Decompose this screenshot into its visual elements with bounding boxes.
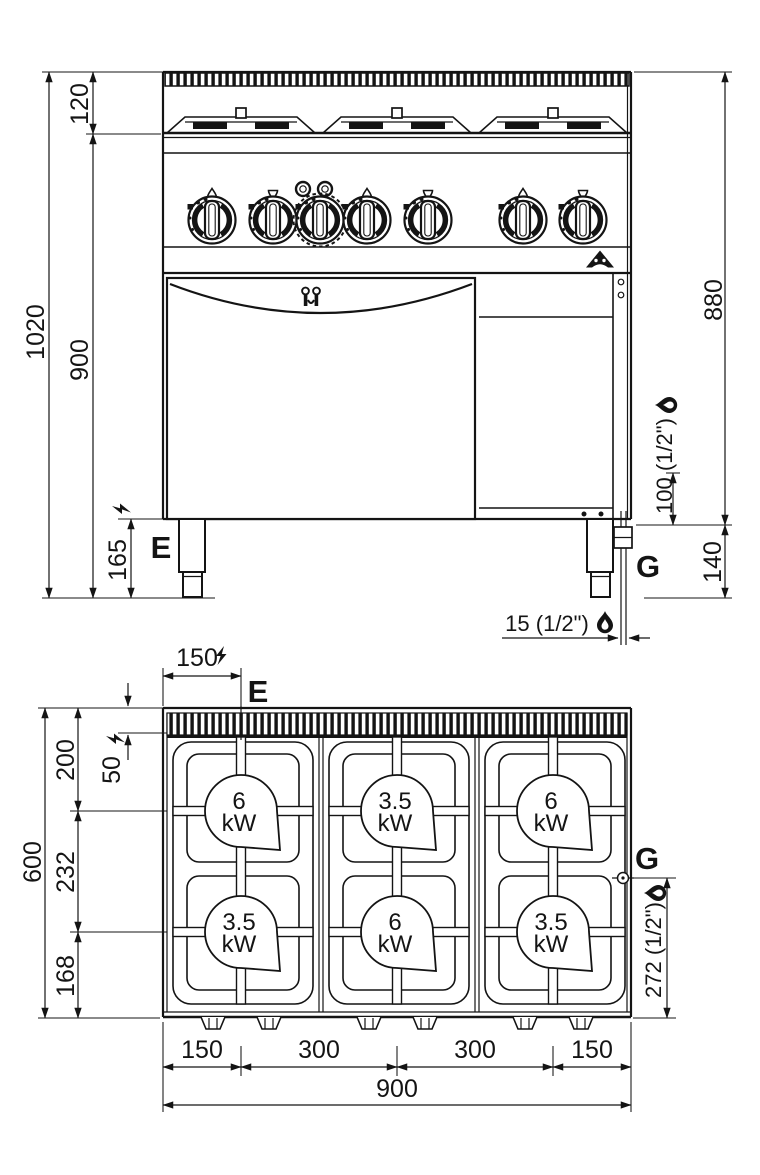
top-vent-rail	[165, 73, 629, 86]
dim-top-to-gas: 880	[700, 279, 728, 321]
dim-total-height: 1020	[22, 304, 50, 360]
dim-electric-y: 50	[98, 756, 126, 784]
technical-drawing-page: 1020 120 900 165 E 880 100 (1/2") G 140 …	[0, 0, 760, 1175]
dim-rear-to-row1: 200	[52, 739, 80, 781]
dim-leg-height: 165	[104, 539, 132, 581]
screw-icon	[582, 512, 587, 517]
dim-col-right: 150	[571, 1036, 613, 1064]
dim-top-section: 120	[66, 83, 94, 125]
dim-row2-to-front: 168	[52, 955, 80, 997]
rear-vent-grille	[167, 713, 627, 735]
dim-gas-rise: 100 (1/2")	[652, 418, 677, 514]
oven-knob[interactable]	[296, 197, 344, 244]
burner-unit: kW	[378, 931, 413, 958]
burner-unit: kW	[222, 810, 257, 837]
screw-icon	[599, 512, 604, 517]
dim-col-mid1: 300	[298, 1036, 340, 1064]
burner-knob[interactable]	[559, 197, 607, 244]
gas-range-dimension-drawing: 1020 120 900 165 E 880 100 (1/2") G 140 …	[0, 0, 760, 1175]
left-leg	[179, 519, 205, 572]
burner-knob[interactable]	[404, 197, 452, 244]
left-foot	[183, 572, 202, 597]
right-leg	[587, 519, 613, 572]
dim-width-total: 900	[376, 1075, 418, 1103]
gas-connection-label: G	[636, 549, 660, 584]
burner-knob[interactable]	[499, 197, 547, 244]
dim-body-height: 900	[66, 339, 94, 381]
dim-depth-total: 600	[19, 841, 47, 883]
burner-knob[interactable]	[249, 197, 297, 244]
dim-gas-from-front: 272 (1/2")	[641, 902, 666, 998]
electric-connection-label: E	[248, 674, 269, 709]
electric-connection-label: E	[151, 530, 172, 565]
dim-gas-pipe-offset: 15 (1/2")	[505, 611, 589, 636]
dim-col-mid2: 300	[454, 1036, 496, 1064]
dim-gas-height: 140	[699, 541, 727, 583]
gas-connection-label: G	[635, 841, 659, 876]
burner-unit: kW	[534, 810, 569, 837]
right-foot	[591, 572, 610, 597]
burner-knob[interactable]	[343, 197, 391, 244]
dim-electric-x: 150	[176, 644, 218, 672]
burner-unit: kW	[534, 931, 569, 958]
oven-door[interactable]	[167, 278, 475, 519]
burner-knob[interactable]	[188, 197, 236, 244]
dim-row1-to-row2: 232	[52, 851, 80, 893]
burner-unit: kW	[378, 810, 413, 837]
burner-unit: kW	[222, 931, 257, 958]
dim-col-left: 150	[181, 1036, 223, 1064]
